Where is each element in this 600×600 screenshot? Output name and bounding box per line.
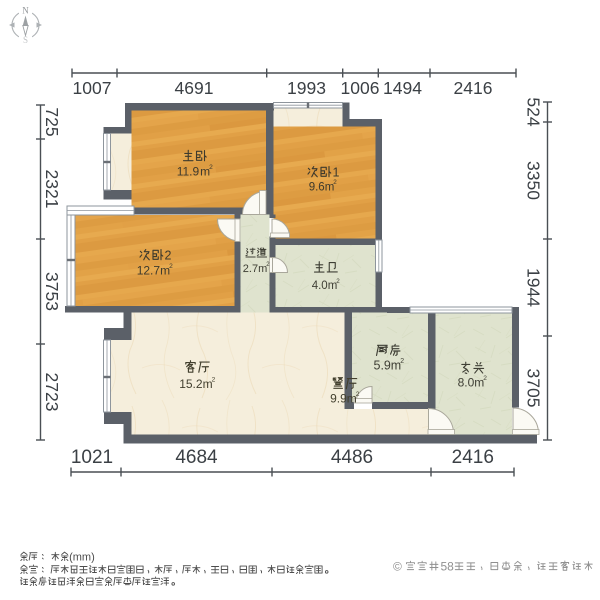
svg-text:N: N: [22, 6, 29, 16]
svg-text:11.9: 11.9: [177, 164, 200, 178]
svg-text:9.9: 9.9: [330, 391, 347, 405]
svg-text:12.7: 12.7: [137, 263, 161, 277]
svg-text:2: 2: [212, 376, 216, 383]
svg-text:5.9: 5.9: [374, 358, 391, 372]
svg-text:2: 2: [169, 263, 173, 270]
svg-text:2: 2: [209, 164, 213, 171]
svg-text:2: 2: [333, 179, 337, 186]
svg-text:15.2: 15.2: [179, 377, 203, 391]
svg-text:58: 58: [441, 559, 455, 573]
svg-text:1006: 1006: [341, 78, 380, 98]
svg-text:4691: 4691: [175, 78, 214, 98]
svg-text:2: 2: [165, 248, 172, 262]
svg-text:8.0: 8.0: [458, 376, 475, 390]
svg-text:3350: 3350: [524, 161, 544, 200]
svg-text:2: 2: [400, 358, 404, 365]
svg-text:9.6: 9.6: [309, 181, 325, 193]
svg-text:3753: 3753: [42, 272, 62, 311]
svg-text:2: 2: [336, 278, 340, 285]
svg-text:(mm): (mm): [69, 551, 95, 563]
svg-text:4684: 4684: [175, 447, 218, 468]
svg-text:1993: 1993: [287, 78, 326, 98]
svg-text:1021: 1021: [71, 447, 113, 468]
svg-text:524: 524: [524, 97, 544, 126]
svg-text:2.7: 2.7: [243, 263, 258, 275]
svg-text:1007: 1007: [73, 78, 112, 98]
svg-text:4.0: 4.0: [312, 280, 328, 292]
svg-text:2: 2: [483, 375, 487, 382]
svg-text:©: ©: [393, 559, 402, 573]
svg-text:3705: 3705: [524, 369, 544, 408]
svg-text:1494: 1494: [383, 78, 422, 98]
svg-text:4486: 4486: [331, 447, 373, 468]
svg-text:2: 2: [266, 261, 270, 268]
svg-text:725: 725: [42, 107, 62, 136]
svg-text:2416: 2416: [454, 78, 493, 98]
svg-text:2416: 2416: [452, 447, 494, 468]
svg-text:2321: 2321: [42, 170, 62, 209]
svg-text:1944: 1944: [524, 268, 544, 307]
svg-text:2723: 2723: [42, 373, 62, 412]
svg-text:1: 1: [333, 165, 340, 179]
svg-text:2: 2: [356, 391, 360, 398]
